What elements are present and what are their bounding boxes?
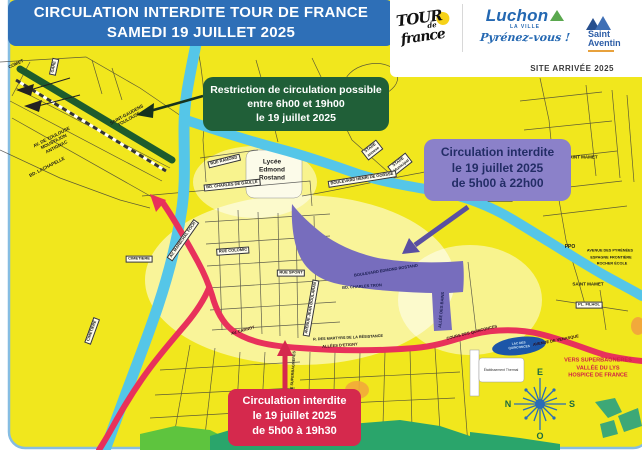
logo-box: TOUR de france Luchon LA VILLE Pyrénez-v…: [390, 0, 642, 77]
map-poster: COMETGARESAINT-GAUDENS TOULOUSEAV. DE TO…: [0, 0, 642, 450]
compass-east: E: [537, 367, 543, 377]
callout-interdite-red: Circulation interdite le 19 juillet 2025…: [228, 389, 361, 446]
luchon-logo: Luchon LA VILLE Pyrénez-vous !: [470, 6, 580, 44]
title-line1: CIRCULATION INTERDITE TOUR DE FRANCE: [8, 3, 394, 23]
compass-north: N: [505, 399, 512, 409]
saint-aventin-name: Saint Aventin: [588, 30, 621, 52]
luchon-name: Luchon: [486, 6, 549, 25]
callout-interdite-purple: Circulation interdite le 19 juillet 2025…: [424, 139, 571, 201]
callout-restriction-green: Restriction de circulation possible entr…: [203, 77, 389, 131]
saint-aventin-logo: Saint Aventin: [586, 16, 640, 52]
luchon-tagline: Pyrénez-vous !: [469, 31, 580, 44]
compass-south: S: [569, 399, 575, 409]
title-line2: SAMEDI 19 JUILLET 2025: [8, 23, 394, 43]
mountain-icon: [550, 10, 564, 21]
saint-aventin-bar: [588, 50, 614, 52]
site-arrivee-label: SITE ARRIVÉE 2025: [530, 64, 614, 73]
title-banner: CIRCULATION INTERDITE TOUR DE FRANCE SAM…: [8, 0, 394, 46]
tour-de-france-logo: TOUR de france: [395, 4, 463, 58]
tdf-france-text: france: [400, 26, 446, 48]
saint-aventin-mountains-icon: [586, 16, 610, 30]
compass-west: O: [536, 431, 543, 441]
